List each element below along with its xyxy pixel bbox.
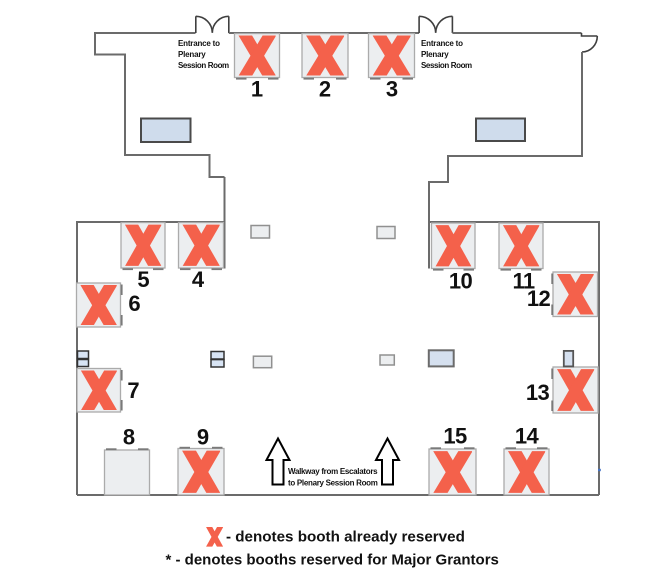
svg-text:Plenary: Plenary [178, 50, 206, 59]
svg-text:1: 1 [251, 77, 263, 102]
svg-text:5: 5 [137, 267, 149, 292]
svg-text:2: 2 [319, 77, 331, 102]
svg-text:15: 15 [443, 424, 467, 449]
svg-text:10: 10 [449, 269, 473, 294]
svg-text:Session Room: Session Room [421, 61, 472, 70]
svg-text:12: 12 [527, 286, 551, 311]
svg-text:3: 3 [386, 77, 398, 102]
svg-text:9: 9 [197, 425, 209, 450]
svg-text:Session Room: Session Room [178, 61, 229, 70]
svg-text:Walkway from Escalators: Walkway from Escalators [288, 467, 378, 476]
svg-text:- denotes booth already reserv: - denotes booth already reserved [226, 529, 465, 546]
svg-text:* - denotes booths reserved fo: * - denotes booths reserved for Major Gr… [166, 552, 499, 569]
svg-text:to Plenary Session Room: to Plenary Session Room [288, 479, 378, 488]
svg-text:13: 13 [526, 380, 550, 405]
svg-text:Entrance to: Entrance to [421, 39, 463, 48]
svg-text:4: 4 [192, 267, 205, 292]
svg-text:8: 8 [123, 425, 135, 450]
svg-text:6: 6 [128, 291, 140, 316]
svg-text:Entrance to: Entrance to [178, 39, 220, 48]
svg-text:Plenary: Plenary [421, 50, 449, 59]
svg-text:7: 7 [127, 378, 139, 403]
svg-text:14: 14 [515, 424, 540, 449]
